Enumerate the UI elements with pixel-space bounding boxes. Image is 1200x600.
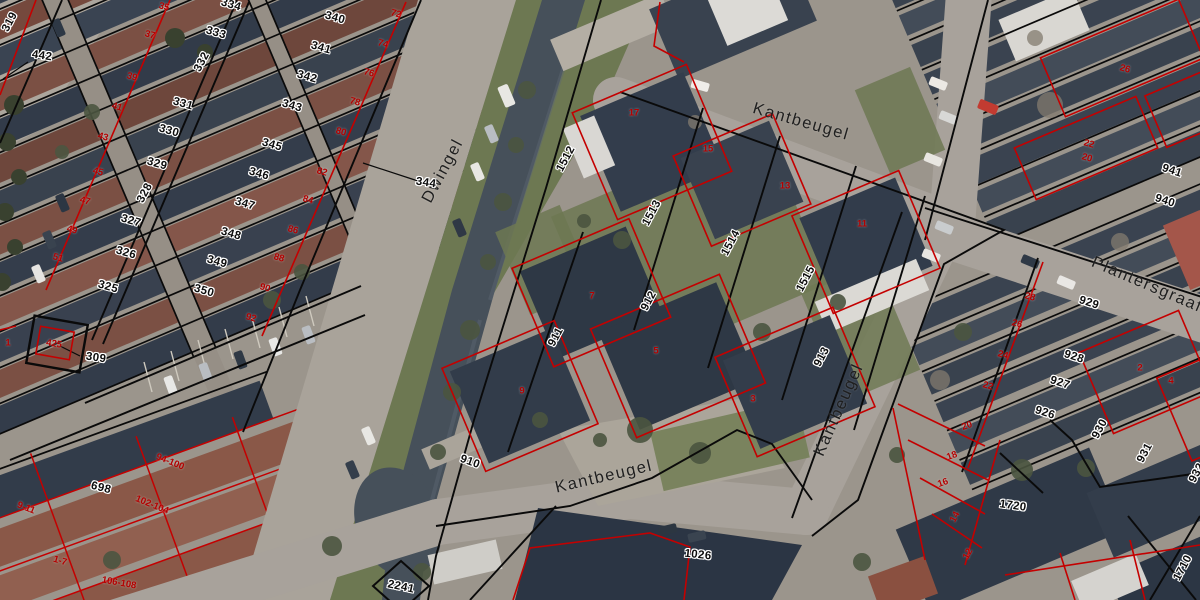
aerial-imagery <box>0 0 1200 600</box>
north-road <box>952 0 970 226</box>
map-viewport[interactable]: DwingelKantbeugelKantbeugelKantbeugelPla… <box>0 0 1200 600</box>
